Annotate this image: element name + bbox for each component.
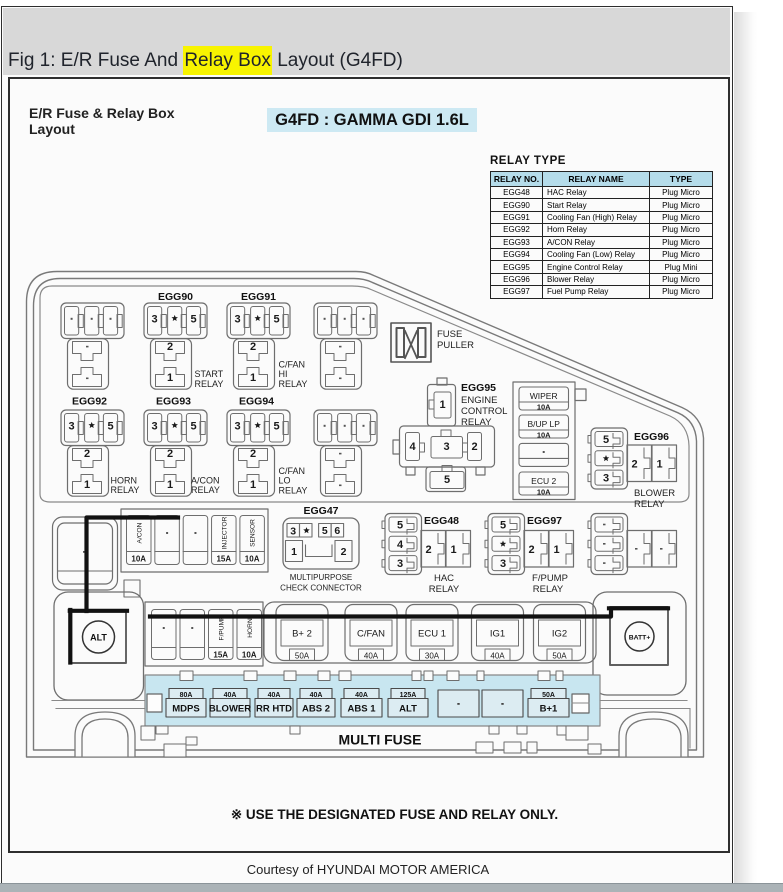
- svg-text:A/CON: A/CON: [191, 476, 220, 486]
- svg-text:1: 1: [439, 399, 445, 411]
- svg-text:CHECK CONNECTOR: CHECK CONNECTOR: [280, 584, 362, 593]
- svg-text:5: 5: [444, 474, 450, 486]
- svg-text:2: 2: [250, 448, 256, 460]
- svg-text:MULTIPURPOSE: MULTIPURPOSE: [290, 573, 353, 582]
- svg-text:MULTI FUSE: MULTI FUSE: [339, 732, 422, 748]
- svg-text:1: 1: [250, 372, 256, 384]
- svg-text:2: 2: [631, 459, 637, 471]
- svg-text:CONTROL: CONTROL: [461, 406, 507, 417]
- svg-text:2: 2: [471, 441, 477, 453]
- svg-text:RELAY: RELAY: [279, 485, 308, 495]
- svg-text:3: 3: [443, 441, 449, 453]
- svg-text:1: 1: [84, 479, 90, 491]
- svg-text:EGG95: EGG95: [461, 382, 496, 394]
- svg-text:B+ 2: B+ 2: [292, 629, 312, 640]
- svg-text:ENGINE: ENGINE: [461, 395, 497, 406]
- svg-text:40A: 40A: [355, 692, 368, 699]
- svg-text:RELAY: RELAY: [195, 379, 224, 389]
- svg-text:1: 1: [450, 544, 456, 556]
- svg-text:5: 5: [273, 421, 279, 433]
- svg-text:RELAY: RELAY: [279, 379, 308, 389]
- svg-text:INJECTOR: INJECTOR: [221, 516, 228, 549]
- svg-text:SENSOR: SENSOR: [250, 519, 257, 547]
- svg-text:HORN: HORN: [111, 476, 138, 486]
- svg-text:C/FAN: C/FAN: [279, 359, 306, 369]
- svg-text:2: 2: [425, 544, 431, 556]
- svg-text:1: 1: [250, 479, 256, 491]
- svg-text:40A: 40A: [268, 692, 281, 699]
- svg-text:15A: 15A: [213, 651, 228, 660]
- svg-text:5: 5: [603, 434, 609, 446]
- svg-text:30A: 30A: [425, 652, 440, 661]
- svg-text:5: 5: [500, 520, 506, 532]
- svg-text:EGG96: EGG96: [634, 431, 669, 443]
- svg-text:40A: 40A: [224, 692, 237, 699]
- svg-text:RR HTD: RR HTD: [256, 704, 292, 715]
- svg-text:EGG47: EGG47: [303, 505, 338, 517]
- svg-text:3: 3: [69, 421, 75, 433]
- svg-text:3: 3: [235, 314, 241, 326]
- svg-text:1: 1: [656, 459, 662, 471]
- svg-text:HORN: HORN: [247, 618, 254, 638]
- svg-text:F/PUMP: F/PUMP: [532, 573, 568, 584]
- svg-text:5: 5: [322, 525, 328, 537]
- svg-text:3: 3: [152, 421, 158, 433]
- svg-text:A/CON: A/CON: [136, 522, 143, 543]
- svg-text:10A: 10A: [537, 488, 551, 497]
- svg-text:EGG90: EGG90: [158, 291, 193, 303]
- svg-text:5: 5: [397, 520, 403, 532]
- svg-text:EGG94: EGG94: [239, 396, 274, 408]
- svg-text:2: 2: [167, 448, 173, 460]
- svg-text:3: 3: [603, 473, 609, 485]
- svg-text:START: START: [195, 369, 224, 379]
- svg-text:5: 5: [190, 314, 196, 326]
- svg-text:1: 1: [291, 546, 297, 558]
- svg-text:RELAY: RELAY: [111, 485, 140, 495]
- svg-text:RELAY: RELAY: [634, 499, 665, 510]
- svg-text:BLOWER: BLOWER: [209, 704, 251, 715]
- svg-text:ALT: ALT: [399, 704, 417, 715]
- svg-text:ALT: ALT: [90, 633, 107, 643]
- svg-text:C/FAN: C/FAN: [357, 629, 385, 640]
- svg-text:3: 3: [397, 558, 403, 570]
- svg-text:3: 3: [235, 421, 241, 433]
- svg-text:EGG48: EGG48: [424, 515, 459, 527]
- svg-text:MDPS: MDPS: [172, 704, 199, 715]
- svg-text:1: 1: [553, 544, 559, 556]
- svg-text:40A: 40A: [490, 652, 505, 661]
- svg-text:10A: 10A: [131, 555, 146, 564]
- svg-text:10A: 10A: [537, 403, 551, 412]
- svg-text:50A: 50A: [552, 652, 567, 661]
- svg-text:F/PUMP: F/PUMP: [218, 615, 225, 641]
- svg-text:BLOWER: BLOWER: [634, 488, 675, 499]
- svg-text:EGG93: EGG93: [156, 396, 191, 408]
- svg-text:2: 2: [250, 341, 256, 353]
- svg-text:ECU 1: ECU 1: [418, 629, 446, 640]
- svg-text:10A: 10A: [242, 651, 257, 660]
- svg-text:FUSE: FUSE: [437, 329, 462, 340]
- svg-text:3: 3: [500, 558, 506, 570]
- svg-text:5: 5: [273, 314, 279, 326]
- svg-text:3: 3: [290, 526, 296, 538]
- svg-text:BATT+: BATT+: [629, 635, 651, 642]
- svg-text:10A: 10A: [537, 431, 551, 440]
- svg-text:EGG91: EGG91: [241, 291, 276, 303]
- svg-text:HI: HI: [279, 369, 288, 379]
- svg-text:IG1: IG1: [490, 629, 505, 640]
- svg-text:5: 5: [190, 421, 196, 433]
- svg-text:HAC: HAC: [434, 573, 454, 584]
- svg-text:125A: 125A: [400, 692, 417, 699]
- svg-text:6: 6: [334, 525, 340, 537]
- svg-text:10A: 10A: [245, 555, 260, 564]
- svg-text:PULLER: PULLER: [437, 340, 474, 351]
- svg-text:ABS 2: ABS 2: [302, 704, 330, 715]
- svg-text:RELAY: RELAY: [533, 584, 564, 595]
- svg-text:4: 4: [397, 539, 404, 551]
- svg-text:40A: 40A: [364, 652, 379, 661]
- svg-text:LO: LO: [279, 476, 291, 486]
- svg-text:RELAY: RELAY: [461, 417, 492, 428]
- svg-text:50A: 50A: [542, 692, 555, 699]
- svg-text:ABS 1: ABS 1: [348, 704, 377, 715]
- svg-text:EGG97: EGG97: [527, 515, 562, 527]
- svg-text:2: 2: [528, 544, 534, 556]
- svg-text:50A: 50A: [295, 652, 310, 661]
- svg-text:RELAY: RELAY: [191, 485, 220, 495]
- svg-text:RELAY: RELAY: [429, 584, 460, 595]
- svg-text:2: 2: [167, 341, 173, 353]
- svg-text:B/UP LP: B/UP LP: [527, 419, 560, 429]
- svg-text:5: 5: [107, 421, 113, 433]
- svg-text:80A: 80A: [180, 692, 193, 699]
- svg-text:IG2: IG2: [552, 629, 567, 640]
- svg-text:15A: 15A: [216, 555, 231, 564]
- svg-text:EGG92: EGG92: [72, 396, 107, 408]
- svg-text:B+1: B+1: [540, 704, 558, 715]
- svg-text:4: 4: [409, 441, 416, 453]
- svg-text:WIPER: WIPER: [530, 391, 558, 401]
- svg-text:3: 3: [152, 314, 158, 326]
- svg-text:ECU 2: ECU 2: [531, 476, 556, 486]
- svg-text:1: 1: [167, 372, 173, 384]
- svg-text:2: 2: [84, 448, 90, 460]
- svg-text:C/FAN: C/FAN: [279, 466, 306, 476]
- svg-text:2: 2: [341, 546, 347, 558]
- svg-text:40A: 40A: [310, 692, 323, 699]
- svg-text:1: 1: [167, 479, 173, 491]
